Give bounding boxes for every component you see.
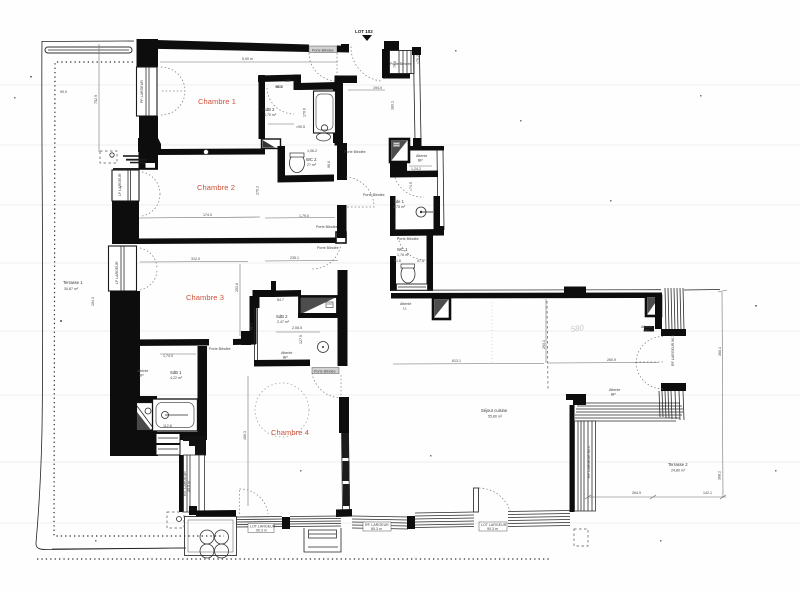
svg-text:SdB 2: SdB 2 (263, 107, 275, 112)
svg-text:90.0: 90.0 (327, 161, 331, 168)
svg-text:2? m²: 2? m² (307, 163, 317, 167)
svg-text:LL: LL (403, 307, 407, 311)
svg-text:Porte Blindée: Porte Blindée (316, 225, 338, 229)
svg-text:270.2: 270.2 (256, 186, 260, 195)
svg-text:3,70 m²: 3,70 m² (264, 113, 277, 117)
svg-text:1,79.0: 1,79.0 (299, 214, 309, 218)
svg-text:308.2: 308.2 (718, 471, 722, 480)
svg-text:84.7: 84.7 (277, 298, 284, 302)
svg-text:BP: BP (283, 356, 288, 360)
svg-text:104.3: 104.3 (91, 297, 95, 306)
svg-text:34: 34 (285, 79, 289, 83)
svg-text:112.8: 112.8 (163, 424, 172, 428)
svg-text:235.1: 235.1 (290, 256, 299, 260)
svg-text:580: 580 (570, 323, 585, 334)
svg-text:24,80 m²: 24,80 m² (671, 469, 686, 473)
svg-text:SdB 1: SdB 1 (170, 370, 182, 375)
svg-text:Attente: Attente (609, 388, 620, 392)
svg-text:1,74.0: 1,74.0 (163, 354, 173, 358)
svg-text:293.1: 293.1 (542, 340, 546, 349)
svg-text:Porte Blindée: Porte Blindée (363, 193, 385, 197)
svg-text:Terrasse 1: Terrasse 1 (63, 280, 83, 285)
svg-text:Attente: Attente (281, 351, 292, 355)
svg-text:Chambre 1: Chambre 1 (198, 97, 236, 106)
svg-text:BP: BP (611, 393, 616, 397)
svg-text:88.1: 88.1 (250, 323, 254, 330)
svg-text:90.5: 90.5 (275, 85, 282, 89)
svg-text:752.9: 752.9 (94, 95, 98, 104)
svg-text:Porte Blindée: Porte Blindée (209, 347, 231, 351)
svg-text:360.1: 360.1 (718, 347, 722, 356)
svg-text:1,70: 1,70 (139, 427, 146, 431)
svg-text:90.3 m: 90.3 m (487, 527, 498, 531)
svg-text:Porte Blindée: Porte Blindée (314, 370, 336, 374)
svg-text:Porte Blindée: Porte Blindée (317, 246, 339, 250)
svg-text:312.0: 312.0 (191, 257, 200, 261)
svg-text:406.3: 406.3 (243, 431, 247, 440)
svg-text:Porte Blindée: Porte Blindée (312, 49, 334, 53)
svg-text:1,76 m²: 1,76 m² (397, 253, 410, 257)
svg-text:clim: clim (643, 329, 649, 333)
svg-text:≈74.5: ≈74.5 (409, 182, 413, 191)
svg-text:1,06.2: 1,06.2 (307, 149, 317, 153)
svg-text:Chambre 3: Chambre 3 (186, 293, 224, 302)
svg-text:Attente: Attente (400, 302, 411, 306)
svg-text:LF LARGEUR: LF LARGEUR (115, 261, 119, 284)
svg-text:260.9: 260.9 (607, 358, 616, 362)
svg-text:613.1: 613.1 (452, 359, 461, 363)
svg-text:RF LARGEUR 90.3: RF LARGEUR 90.3 (671, 335, 675, 366)
svg-text:2,47 m²: 2,47 m² (277, 320, 290, 324)
svg-text:Sde 1: Sde 1 (393, 199, 405, 204)
svg-text:Chambre 2: Chambre 2 (197, 183, 235, 192)
svg-text:≈90.5: ≈90.5 (296, 125, 305, 129)
svg-text:LF LARGEUR: LF LARGEUR (118, 173, 122, 196)
svg-text:90.0: 90.0 (60, 90, 67, 94)
svg-text:5,00 m: 5,00 m (242, 57, 253, 61)
svg-text:Attente: Attente (137, 369, 148, 373)
svg-text:Porte Blindée: Porte Blindée (390, 62, 412, 66)
svg-text:170.6: 170.6 (303, 108, 307, 117)
svg-text:253.6: 253.6 (235, 283, 239, 292)
svg-text:4,22 m²: 4,22 m² (170, 376, 183, 380)
svg-text:183.1: 183.1 (391, 101, 395, 110)
svg-text:WC 1: WC 1 (397, 247, 408, 252)
svg-text:2,75 m²: 2,75 m² (393, 205, 406, 209)
svg-text:47.6: 47.6 (417, 259, 424, 263)
svg-text:127.5: 127.5 (299, 335, 303, 344)
svg-text:SdB 2: SdB 2 (276, 314, 288, 319)
svg-text:Porte Blindée: Porte Blindée (397, 237, 419, 241)
svg-text:BP: BP (418, 159, 423, 163)
svg-text:264.9: 264.9 (632, 491, 641, 495)
svg-text:BP: BP (139, 374, 144, 378)
svg-text:1,24.2: 1,24.2 (411, 167, 421, 171)
svg-text:WC 2: WC 2 (306, 157, 317, 162)
svg-text:174.0: 174.0 (203, 213, 212, 217)
svg-text:194.0: 194.0 (373, 86, 382, 90)
svg-text:Porte Blindée: Porte Blindée (344, 150, 366, 154)
svg-text:2,08.5: 2,08.5 (292, 326, 302, 330)
svg-text:55,80 m²: 55,80 m² (488, 415, 503, 419)
svg-text:RF. LARGEUR 80.3: RF. LARGEUR 80.3 (587, 446, 591, 478)
svg-text:142.1: 142.1 (703, 491, 712, 495)
svg-text:PF LARGEUR: PF LARGEUR (140, 80, 144, 103)
svg-text:91.6: 91.6 (394, 259, 401, 263)
svg-text:30,87 m²: 30,87 m² (64, 287, 79, 291)
svg-text:40.5 m: 40.5 m (187, 481, 191, 492)
svg-text:Terrasse 2: Terrasse 2 (668, 462, 688, 467)
svg-text:Attente: Attente (416, 154, 427, 158)
svg-text:80.3 m: 80.3 m (371, 527, 382, 531)
svg-text:Séjour cuisine: Séjour cuisine (481, 408, 508, 413)
svg-text:LOT 102: LOT 102 (355, 29, 373, 34)
svg-text:90.3 m: 90.3 m (256, 529, 267, 533)
svg-text:Chambre 4: Chambre 4 (271, 428, 309, 437)
